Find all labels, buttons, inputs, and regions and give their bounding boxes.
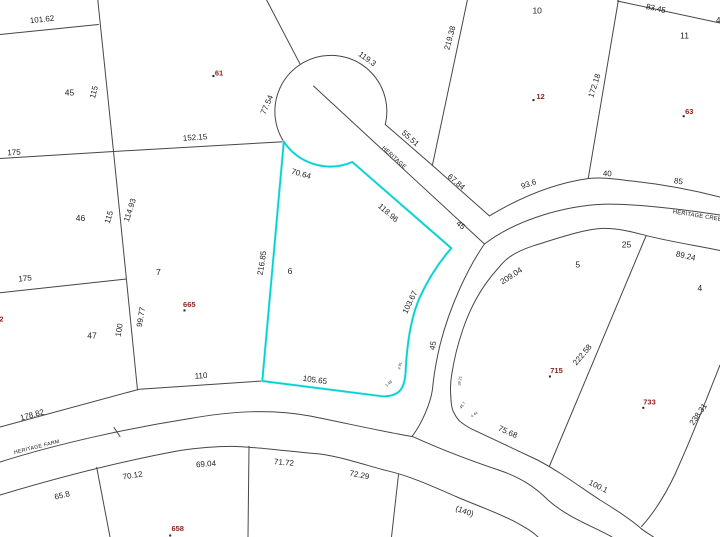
svg-text:175: 175	[7, 148, 21, 158]
svg-text:6: 6	[288, 266, 293, 276]
svg-text:733: 733	[643, 398, 656, 407]
svg-text:47: 47	[87, 331, 97, 341]
svg-text:175: 175	[18, 273, 33, 283]
svg-text:7: 7	[156, 267, 161, 277]
svg-text:40: 40	[603, 169, 613, 178]
svg-text:45: 45	[65, 88, 75, 98]
svg-text:45: 45	[716, 16, 720, 25]
svg-text:71.72: 71.72	[274, 457, 295, 468]
svg-text:715: 715	[550, 366, 563, 375]
svg-text:11: 11	[680, 30, 689, 40]
svg-text:152.15: 152.15	[183, 132, 209, 143]
svg-text:5: 5	[575, 259, 580, 269]
svg-text:110: 110	[194, 371, 208, 381]
svg-text:665: 665	[183, 300, 196, 309]
svg-text:658: 658	[171, 524, 184, 533]
svg-text:2: 2	[0, 315, 4, 324]
svg-text:25: 25	[622, 240, 632, 250]
svg-text:46: 46	[76, 213, 86, 223]
svg-text:61: 61	[215, 69, 223, 78]
svg-text:10: 10	[532, 5, 542, 15]
svg-text:63: 63	[685, 107, 693, 116]
svg-text:85: 85	[673, 176, 684, 186]
svg-text:12: 12	[536, 92, 544, 101]
svg-text:69.04: 69.04	[196, 459, 217, 469]
svg-text:4: 4	[698, 283, 703, 293]
